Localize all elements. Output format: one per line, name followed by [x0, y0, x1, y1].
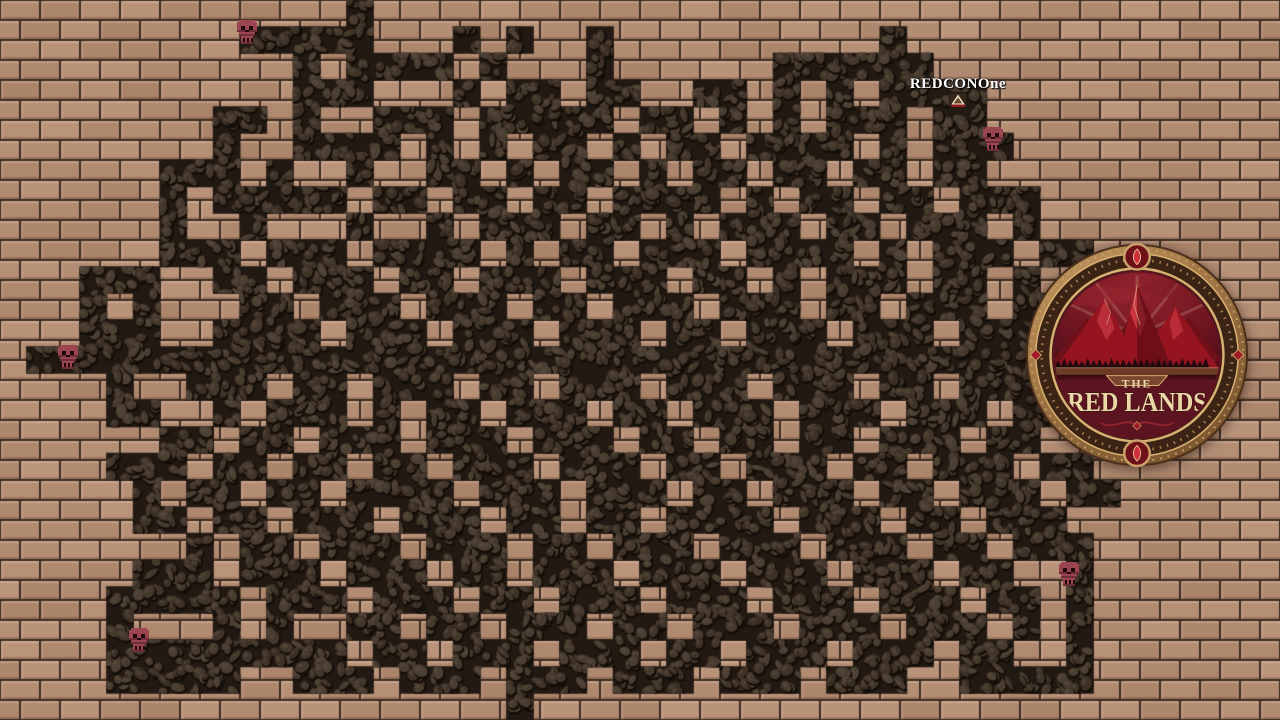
player-sprite-icon [949, 92, 967, 108]
skull-pixel-art [1057, 562, 1081, 588]
skull-icon [56, 345, 80, 371]
logo-top-medallion [1124, 244, 1150, 270]
skull-pixel-art [56, 345, 80, 371]
skull-pixel-art [127, 628, 151, 654]
player-name-label: REDCONOne [893, 76, 1023, 93]
logo-title-red-lands: RED LANDS [1067, 386, 1207, 417]
skull-icon [127, 628, 151, 654]
skull-pixel-art [981, 127, 1005, 153]
player-marker [949, 92, 967, 113]
skull-icon [235, 20, 259, 46]
logo-ground-band [1048, 368, 1227, 376]
red-lands-emblem-svg: THE RED LANDS [1024, 242, 1250, 468]
skull-icon [1057, 562, 1081, 588]
logo-bottom-medallion [1124, 440, 1150, 466]
skull-pixel-art [235, 20, 259, 46]
skull-icon [981, 127, 1005, 153]
red-lands-logo: THE RED LANDS [1024, 242, 1250, 473]
